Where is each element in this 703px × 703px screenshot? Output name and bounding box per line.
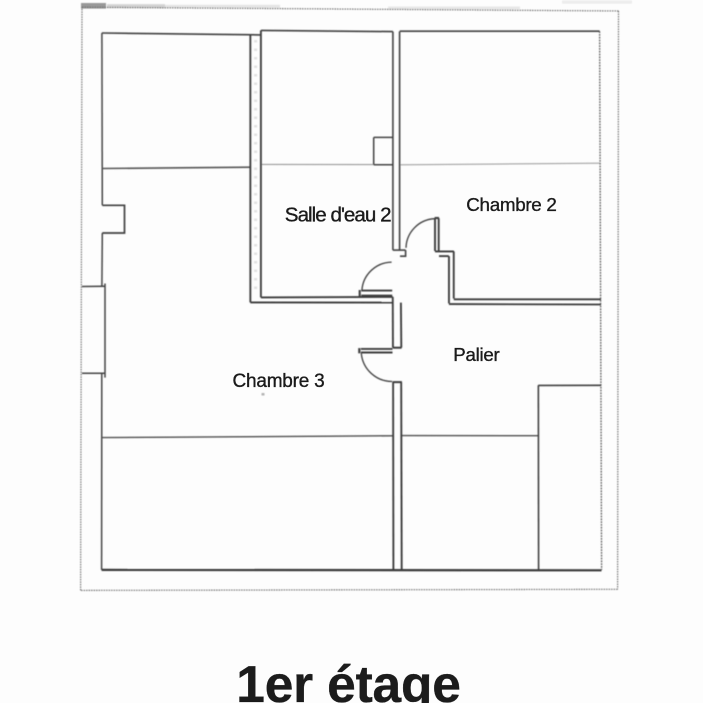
svg-text:Palier: Palier [453, 344, 499, 365]
svg-text:Salle d'eau 2: Salle d'eau 2 [285, 204, 391, 227]
svg-text:1er étage: 1er étage [236, 655, 460, 703]
svg-text:Chambre 2: Chambre 2 [466, 194, 556, 215]
svg-text:Chambre 3: Chambre 3 [233, 371, 325, 392]
